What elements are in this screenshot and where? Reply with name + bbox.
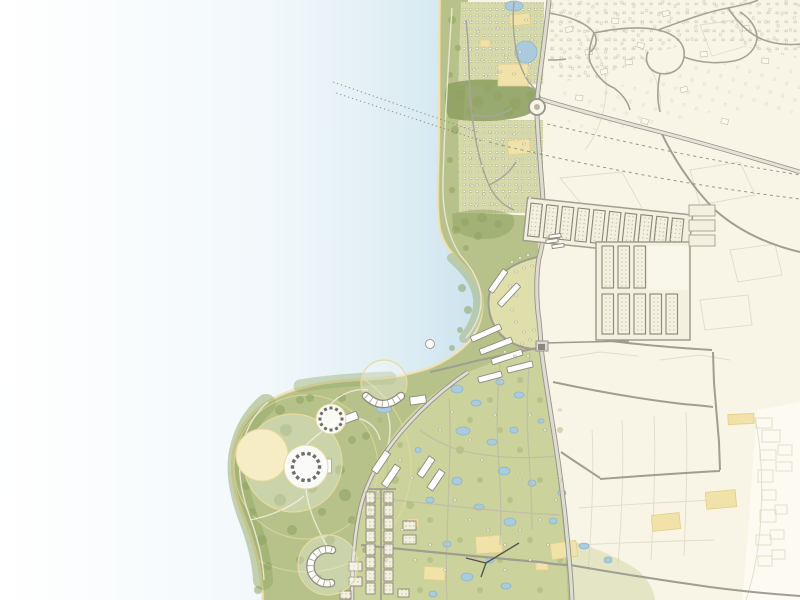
tree bbox=[457, 327, 463, 333]
ladder-block bbox=[384, 531, 393, 542]
small-building bbox=[515, 295, 517, 297]
small-building bbox=[483, 193, 486, 195]
small-building bbox=[514, 355, 517, 357]
ring-pavilion bbox=[291, 465, 294, 468]
small-building bbox=[511, 261, 514, 263]
ladder-block bbox=[366, 544, 375, 555]
small-building bbox=[539, 519, 542, 521]
tree bbox=[264, 562, 272, 570]
ring-pavilion bbox=[330, 407, 333, 410]
town-building bbox=[612, 18, 619, 24]
small-building bbox=[414, 559, 417, 561]
small-building bbox=[469, 49, 471, 51]
small-building bbox=[511, 309, 514, 311]
pond bbox=[510, 427, 518, 433]
small-building bbox=[513, 133, 515, 135]
field-plot bbox=[705, 490, 736, 510]
map-canvas[interactable] bbox=[0, 0, 800, 600]
pond bbox=[461, 573, 473, 581]
tree bbox=[447, 157, 453, 163]
ladder-block bbox=[366, 570, 375, 581]
small-building bbox=[505, 57, 507, 59]
tree bbox=[472, 96, 484, 108]
small-building bbox=[504, 569, 507, 571]
ladder-block bbox=[384, 583, 393, 594]
small-building bbox=[475, 205, 477, 207]
small-building bbox=[517, 29, 519, 31]
tree bbox=[537, 477, 543, 483]
pond bbox=[415, 448, 421, 453]
small-building bbox=[519, 187, 522, 189]
tree bbox=[417, 587, 423, 593]
grid-parcel bbox=[689, 220, 715, 231]
pond bbox=[452, 477, 462, 485]
tree bbox=[494, 220, 502, 228]
small-building bbox=[559, 409, 561, 411]
small-building bbox=[519, 51, 522, 53]
small-building bbox=[505, 167, 507, 169]
small-building bbox=[521, 343, 524, 345]
small-building bbox=[495, 185, 498, 187]
tree bbox=[464, 306, 472, 314]
tree bbox=[296, 396, 304, 404]
small-building bbox=[523, 143, 526, 145]
tree bbox=[306, 394, 314, 402]
grid-parcel bbox=[689, 205, 715, 216]
small-building bbox=[494, 414, 497, 416]
bar-building bbox=[410, 395, 427, 405]
field-plot bbox=[480, 40, 490, 47]
small-building bbox=[515, 271, 518, 273]
white-circle bbox=[284, 445, 328, 489]
pond bbox=[501, 583, 511, 589]
small-building bbox=[501, 141, 504, 143]
small-building bbox=[507, 195, 509, 197]
pond bbox=[514, 392, 524, 398]
tree bbox=[427, 517, 433, 523]
field-plot bbox=[508, 139, 531, 155]
small-building bbox=[469, 519, 472, 521]
tree bbox=[348, 436, 356, 444]
ladder-block bbox=[384, 570, 393, 581]
ladder-block bbox=[403, 535, 416, 544]
small-building bbox=[499, 71, 502, 73]
small-building bbox=[399, 459, 401, 461]
pond bbox=[456, 427, 470, 435]
pond bbox=[504, 518, 516, 526]
tree bbox=[455, 90, 465, 100]
small-building bbox=[544, 429, 547, 431]
small-building bbox=[451, 411, 453, 413]
small-building bbox=[487, 17, 489, 19]
pond bbox=[426, 497, 434, 503]
small-building bbox=[547, 544, 549, 546]
small-building bbox=[504, 351, 507, 353]
small-building bbox=[525, 75, 528, 77]
roundabout-island bbox=[534, 104, 540, 110]
tree bbox=[377, 417, 383, 423]
small-building bbox=[411, 477, 414, 479]
ladder-block bbox=[384, 518, 393, 529]
small-building bbox=[531, 39, 534, 41]
grid-lower-gap bbox=[648, 246, 688, 290]
small-building bbox=[493, 157, 496, 159]
tree bbox=[348, 516, 356, 524]
small-building bbox=[515, 321, 518, 323]
small-building bbox=[444, 569, 447, 571]
tree bbox=[537, 587, 543, 593]
ladder-block bbox=[384, 492, 393, 503]
town-building bbox=[576, 95, 583, 101]
grid-block bbox=[602, 246, 614, 288]
tree bbox=[477, 213, 487, 223]
small-building bbox=[529, 339, 532, 341]
field-plot bbox=[424, 566, 446, 580]
small-building bbox=[507, 13, 510, 15]
small-building bbox=[481, 59, 484, 61]
bay-lookout-plaza bbox=[426, 340, 435, 349]
field-plot bbox=[550, 540, 578, 559]
tree bbox=[484, 84, 492, 92]
tree bbox=[557, 427, 563, 433]
ladder-block bbox=[398, 589, 409, 597]
small-building bbox=[529, 559, 532, 561]
tree bbox=[449, 187, 455, 193]
small-building bbox=[525, 19, 528, 21]
small-building bbox=[369, 509, 372, 511]
grid-block bbox=[650, 294, 662, 334]
small-building bbox=[469, 439, 472, 441]
small-building bbox=[523, 267, 525, 269]
small-building bbox=[504, 544, 506, 546]
tree bbox=[537, 397, 543, 403]
tree bbox=[397, 442, 403, 448]
small-building bbox=[529, 63, 532, 65]
pond bbox=[471, 400, 481, 406]
ring-pavilion bbox=[341, 418, 344, 421]
small-building bbox=[385, 559, 388, 561]
pond bbox=[579, 543, 589, 549]
ladder-block bbox=[366, 557, 375, 568]
grid-block bbox=[634, 294, 646, 334]
ring-pavilion bbox=[330, 429, 333, 432]
small-building bbox=[454, 499, 456, 501]
small-building bbox=[519, 257, 521, 259]
small-building bbox=[485, 75, 488, 77]
town-building bbox=[762, 58, 769, 64]
grid-parcel bbox=[689, 235, 715, 246]
masterplan-map[interactable] bbox=[0, 0, 800, 600]
tree bbox=[275, 405, 285, 415]
small-building bbox=[523, 331, 525, 333]
grid-block bbox=[666, 294, 678, 334]
ladder-block bbox=[366, 518, 375, 529]
field-plot bbox=[651, 513, 681, 532]
small-building bbox=[529, 197, 532, 199]
small-building bbox=[489, 131, 492, 133]
tree bbox=[474, 232, 482, 240]
cream-circle bbox=[236, 429, 288, 481]
grid-block bbox=[634, 246, 646, 288]
small-building bbox=[517, 159, 520, 161]
tree bbox=[254, 586, 262, 594]
small-building bbox=[527, 355, 529, 357]
small-building bbox=[469, 157, 471, 159]
tree bbox=[463, 245, 469, 251]
tree bbox=[526, 91, 534, 99]
pond bbox=[604, 557, 612, 563]
pond bbox=[451, 385, 463, 393]
pond bbox=[487, 439, 497, 445]
pond bbox=[429, 591, 437, 597]
town-building bbox=[625, 59, 632, 65]
tree bbox=[507, 497, 513, 503]
ladder-block bbox=[366, 492, 375, 503]
grid-block bbox=[618, 246, 630, 288]
small-building bbox=[531, 265, 534, 267]
small-building bbox=[493, 49, 496, 51]
small-building bbox=[471, 185, 473, 187]
tree bbox=[318, 508, 326, 516]
small-building bbox=[481, 165, 484, 167]
small-building bbox=[529, 414, 532, 416]
tree bbox=[362, 432, 370, 440]
ladder-block bbox=[403, 521, 416, 530]
small-building bbox=[429, 544, 431, 546]
small-building bbox=[473, 69, 475, 71]
small-building bbox=[377, 491, 380, 493]
small-building bbox=[469, 19, 472, 21]
tree bbox=[477, 477, 483, 483]
small-building bbox=[555, 499, 558, 501]
ring-pavilion bbox=[319, 418, 322, 421]
grid-block bbox=[618, 294, 630, 334]
small-building bbox=[497, 27, 500, 29]
tree bbox=[517, 377, 523, 383]
pond bbox=[538, 419, 544, 423]
tree bbox=[449, 345, 455, 351]
small-building bbox=[527, 254, 530, 256]
small-building bbox=[477, 31, 480, 33]
tree bbox=[493, 91, 503, 101]
tree bbox=[467, 417, 473, 423]
small-building bbox=[519, 479, 521, 481]
pond bbox=[496, 379, 504, 385]
ladder-block bbox=[384, 505, 393, 516]
tree bbox=[457, 537, 463, 543]
town-building bbox=[700, 51, 707, 57]
tree bbox=[527, 537, 533, 543]
small-building bbox=[477, 139, 479, 141]
ladder-block bbox=[366, 583, 375, 594]
grid-block bbox=[602, 294, 614, 334]
pond bbox=[549, 518, 557, 524]
tree bbox=[287, 525, 297, 535]
small-building bbox=[533, 329, 535, 331]
tree bbox=[427, 557, 433, 563]
small-building bbox=[519, 529, 522, 531]
small-building bbox=[481, 459, 484, 461]
ladder-block bbox=[366, 531, 375, 542]
ladder-block bbox=[384, 544, 393, 555]
small-building bbox=[513, 73, 515, 75]
small-building bbox=[439, 429, 442, 431]
tree bbox=[477, 587, 483, 593]
tree bbox=[452, 226, 460, 234]
tree bbox=[461, 218, 469, 226]
tree bbox=[339, 489, 351, 501]
small-building bbox=[527, 171, 530, 173]
tree bbox=[458, 284, 466, 292]
junction-block bbox=[538, 344, 545, 350]
small-building bbox=[531, 151, 534, 153]
small-building bbox=[509, 205, 512, 207]
tree bbox=[487, 397, 493, 403]
small-building bbox=[401, 529, 403, 531]
small-building bbox=[509, 285, 512, 287]
grid-ext-layer bbox=[689, 205, 715, 246]
tree bbox=[451, 126, 459, 134]
tree bbox=[455, 45, 461, 51]
ring-pavilion bbox=[318, 465, 321, 468]
small-building bbox=[487, 529, 490, 531]
field-plot bbox=[728, 413, 754, 424]
small-building bbox=[491, 203, 494, 205]
tree bbox=[517, 447, 523, 453]
field-plot bbox=[475, 535, 502, 554]
pond bbox=[528, 480, 536, 486]
small-building bbox=[559, 479, 562, 481]
